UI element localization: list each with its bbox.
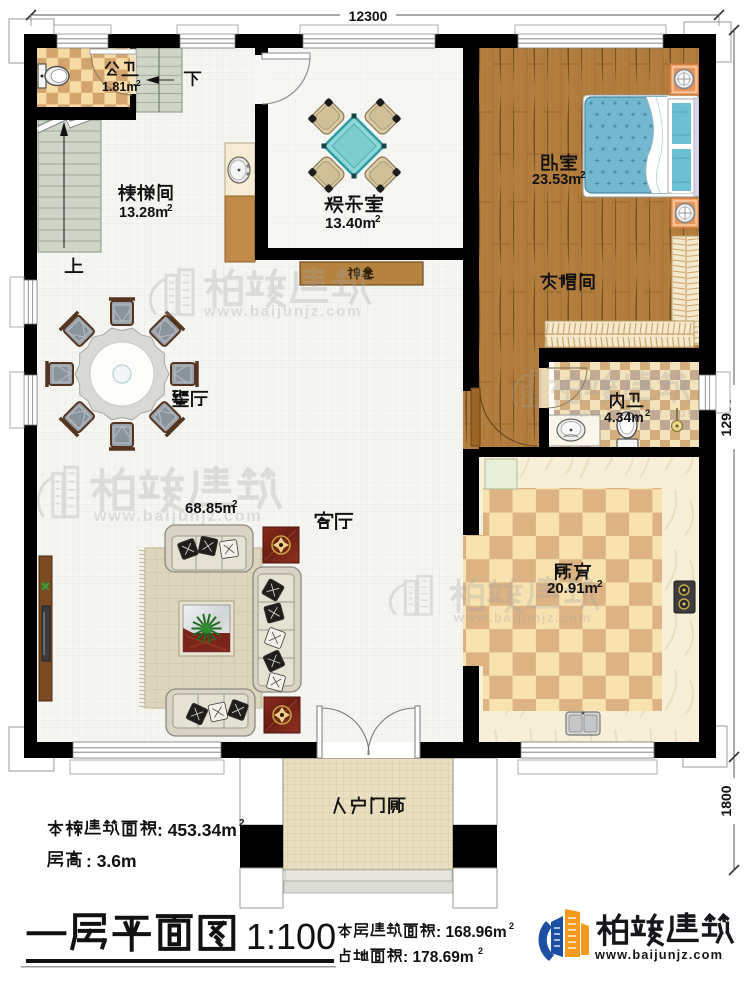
svg-text:2: 2 (580, 170, 586, 181)
svg-text:www.baijunjz.com: www.baijunjz.com (93, 508, 263, 525)
svg-text:2: 2 (232, 499, 238, 510)
svg-text:20.91m: 20.91m (547, 580, 598, 597)
svg-text:1:100: 1:100 (246, 916, 336, 957)
svg-text:13.40m: 13.40m (325, 215, 376, 232)
svg-text:2: 2 (375, 214, 381, 225)
svg-text:23.53m: 23.53m (532, 172, 581, 188)
svg-text:www.baijunjz.com: www.baijunjz.com (594, 947, 723, 962)
svg-text:2: 2 (136, 78, 141, 88)
svg-text:13.28m: 13.28m (119, 205, 168, 221)
svg-text:www.baijunjz.com: www.baijunjz.com (203, 303, 362, 320)
svg-text:2: 2 (167, 203, 173, 214)
svg-text:2: 2 (645, 408, 650, 419)
svg-text:2: 2 (478, 946, 483, 956)
svg-text:www.baijunjz.com: www.baijunjz.com (453, 610, 592, 625)
svg-text:2: 2 (509, 921, 514, 931)
svg-text:: 453.34m: : 453.34m (157, 820, 237, 840)
svg-text:1800: 1800 (718, 785, 734, 816)
svg-text:: 168.96m: : 168.96m (436, 924, 507, 941)
svg-text:2: 2 (597, 579, 603, 590)
svg-text:2: 2 (239, 818, 245, 829)
svg-text:1.81m: 1.81m (102, 80, 137, 94)
svg-text:12300: 12300 (349, 8, 388, 24)
svg-text:4.34m: 4.34m (604, 409, 644, 425)
svg-text:: 178.69m: : 178.69m (403, 949, 474, 966)
svg-text:68.85m: 68.85m (185, 500, 236, 517)
svg-text:: 3.6m: : 3.6m (86, 851, 137, 871)
